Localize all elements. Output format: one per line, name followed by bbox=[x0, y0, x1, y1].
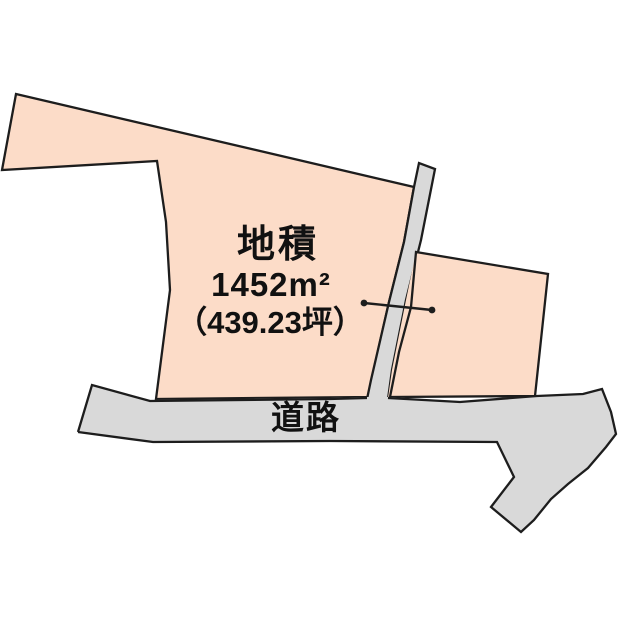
road-label: 道路 bbox=[271, 399, 341, 436]
area-sqm-label: 1452m² bbox=[211, 266, 331, 303]
road-shape bbox=[78, 385, 616, 532]
land-plot-diagram: 地積 1452m² （439.23坪） 道路 bbox=[0, 0, 639, 640]
plot-map-canvas: 地積 1452m² （439.23坪） 道路 bbox=[0, 0, 639, 640]
main-parcel-shape bbox=[2, 94, 414, 399]
area-tsubo-label: （439.23坪） bbox=[176, 305, 364, 340]
leader-dot-right bbox=[429, 307, 436, 314]
area-title-label: 地積 bbox=[237, 224, 319, 266]
right-parcel-fill bbox=[388, 252, 548, 398]
